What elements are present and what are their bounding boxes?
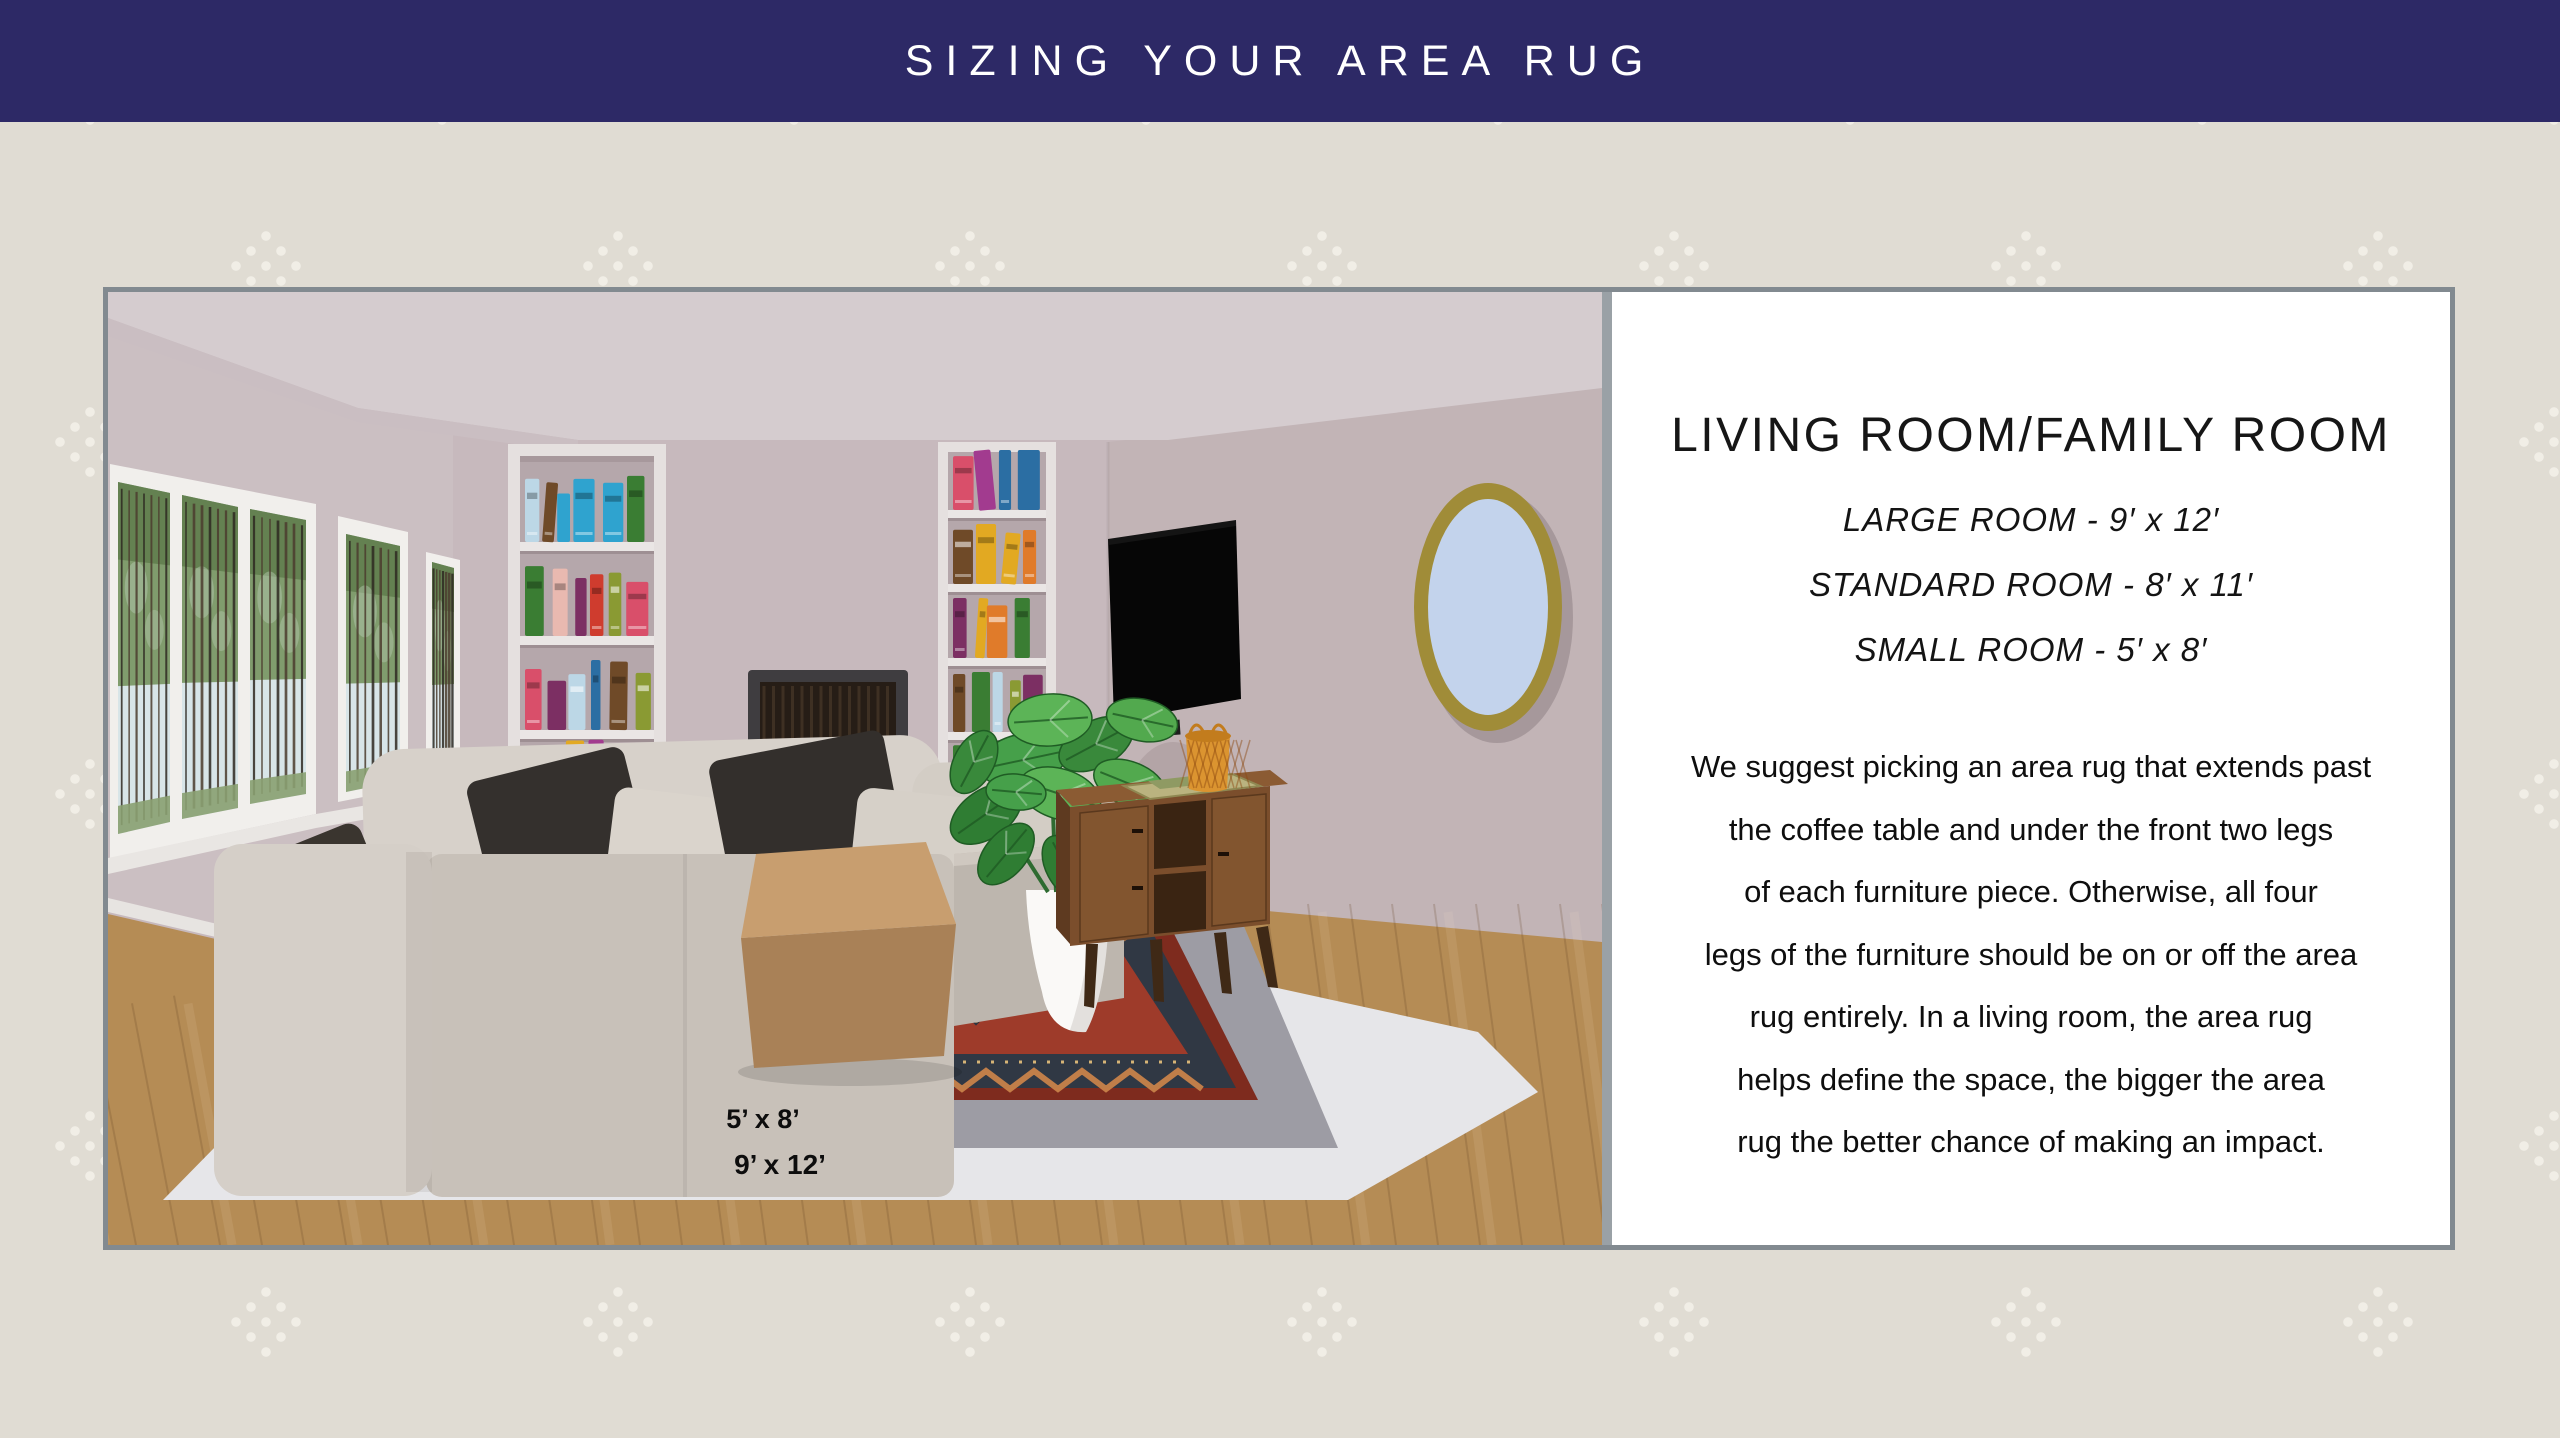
panel-heading: LIVING ROOM/FAMILY ROOM <box>1630 408 2432 463</box>
room-size-list: LARGE ROOM - 9′ x 12′ STANDARD ROOM - 8′… <box>1630 487 2432 682</box>
advice-line: the coffee table and under the front two… <box>1630 799 2432 862</box>
advice-line: helps define the space, the bigger the a… <box>1630 1049 2432 1112</box>
content-card: 5’ x 8’ 9’ x 12’ LIVING ROOM/FAMILY ROOM… <box>103 287 2455 1250</box>
info-panel: LIVING ROOM/FAMILY ROOM LARGE ROOM - 9′ … <box>1612 292 2450 1245</box>
living-room-illustration: 5’ x 8’ 9’ x 12’ <box>108 292 1602 1245</box>
room-size-standard: STANDARD ROOM - 8′ x 11′ <box>1630 552 2432 617</box>
title-banner: SIZING YOUR AREA RUG <box>0 0 2560 122</box>
vertical-divider <box>1602 292 1612 1245</box>
advice-line: legs of the furniture should be on or of… <box>1630 924 2432 987</box>
advice-paragraph: We suggest picking an area rug that exte… <box>1630 736 2432 1174</box>
advice-line: rug entirely. In a living room, the area… <box>1630 986 2432 1049</box>
rug-label-5x8: 5’ x 8’ <box>726 1104 800 1134</box>
page-title: SIZING YOUR AREA RUG <box>905 37 1656 86</box>
advice-line: of each furniture piece. Otherwise, all … <box>1630 861 2432 924</box>
coffee-table <box>738 842 962 1086</box>
advice-line: We suggest picking an area rug that exte… <box>1630 736 2432 799</box>
room-size-large: LARGE ROOM - 9′ x 12′ <box>1630 487 2432 552</box>
rug-label-9x12: 9’ x 12’ <box>734 1149 826 1180</box>
advice-line: rug the better chance of making an impac… <box>1630 1111 2432 1174</box>
room-size-small: SMALL ROOM - 5′ x 8′ <box>1630 617 2432 682</box>
